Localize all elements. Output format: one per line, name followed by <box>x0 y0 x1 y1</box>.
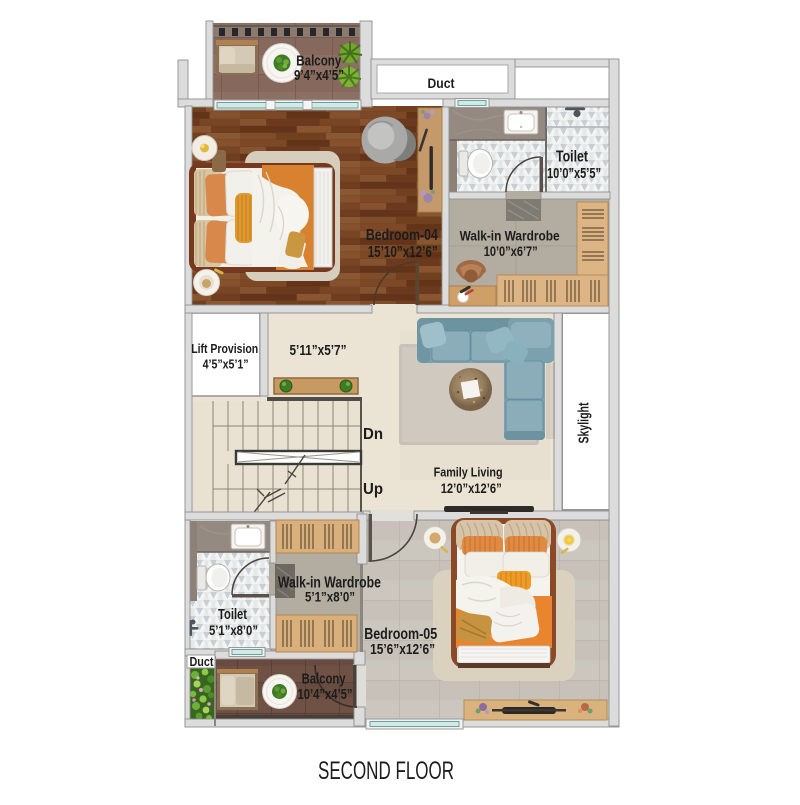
svg-text:SECOND FLOOR: SECOND FLOOR <box>318 757 454 785</box>
svg-text:10’0”x5’5”: 10’0”x5’5” <box>547 165 601 182</box>
svg-text:5’1”x8’0”: 5’1”x8’0” <box>209 622 258 638</box>
svg-text:12’0”x12’6”: 12’0”x12’6” <box>441 481 502 496</box>
svg-text:Up: Up <box>363 481 383 498</box>
svg-text:4’5”x5’1”: 4’5”x5’1” <box>203 357 249 372</box>
svg-text:Dn: Dn <box>363 426 383 443</box>
svg-text:Duct: Duct <box>190 655 215 669</box>
svg-text:Walk-in Wardrobe: Walk-in Wardrobe <box>460 229 560 244</box>
svg-text:Duct: Duct <box>428 76 455 91</box>
svg-text:9’4”x4’5”: 9’4”x4’5” <box>294 68 344 84</box>
svg-text:Family Living: Family Living <box>434 464 503 479</box>
svg-text:Bedroom-04: Bedroom-04 <box>366 227 438 244</box>
svg-text:5’1”x8’0”: 5’1”x8’0” <box>305 589 355 605</box>
svg-text:Lift Provision: Lift Provision <box>191 341 258 356</box>
svg-text:10’0”x6’7”: 10’0”x6’7” <box>484 244 538 259</box>
svg-text:Toilet: Toilet <box>218 606 247 623</box>
svg-text:Skylight: Skylight <box>577 402 593 443</box>
svg-text:Toilet: Toilet <box>556 149 588 166</box>
svg-text:10’4”x4’5”: 10’4”x4’5” <box>298 687 353 703</box>
svg-text:15’10”x12’6”: 15’10”x12’6” <box>368 244 438 261</box>
svg-text:Balcony: Balcony <box>302 671 346 688</box>
svg-text:5’11”x5’7”: 5’11”x5’7” <box>290 342 347 359</box>
svg-text:15’6”x12’6”: 15’6”x12’6” <box>370 641 435 658</box>
